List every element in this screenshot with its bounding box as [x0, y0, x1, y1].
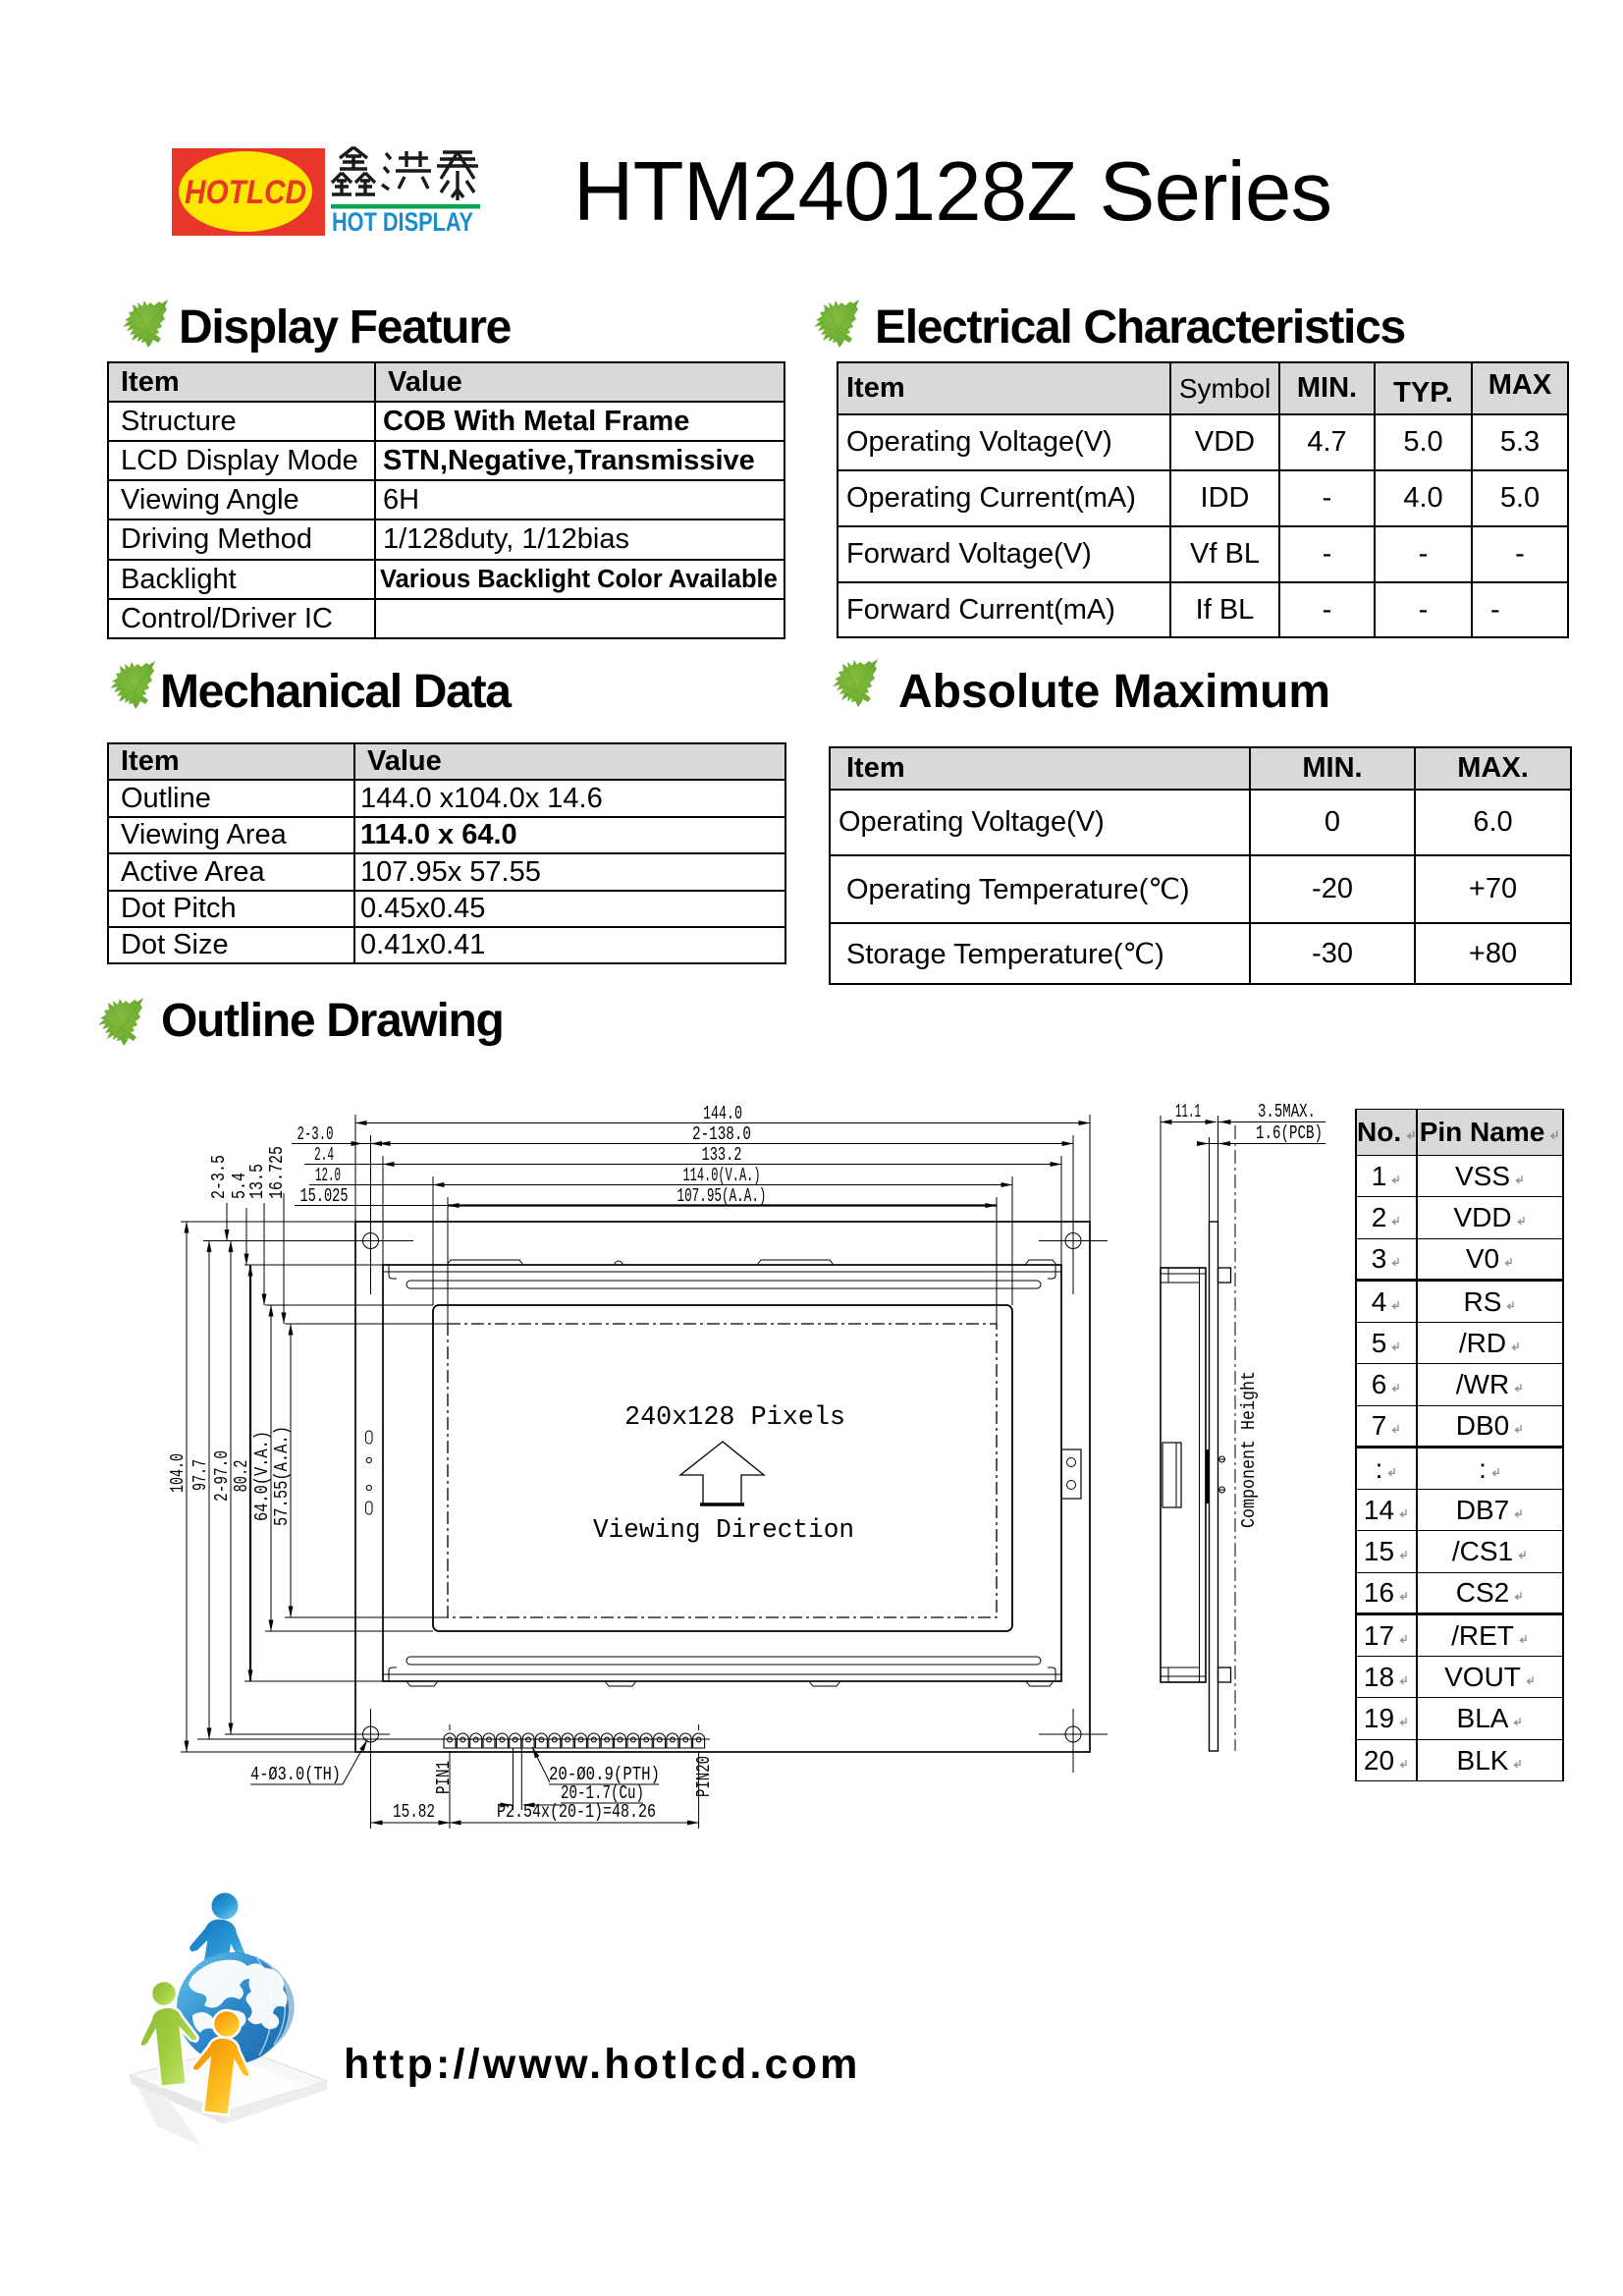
- svg-text:HOTLCD: HOTLCD: [185, 174, 306, 211]
- svg-text:64.0(V.A.): 64.0(V.A.): [251, 1431, 273, 1521]
- svg-text:2-3.5: 2-3.5: [208, 1155, 230, 1199]
- svg-text:80.2: 80.2: [231, 1460, 252, 1493]
- svg-text:HOT DISPLAY: HOT DISPLAY: [332, 207, 473, 237]
- svg-text:1.6(PCB): 1.6(PCB): [1256, 1122, 1323, 1144]
- svg-text:Viewing Direction: Viewing Direction: [593, 1516, 854, 1546]
- svg-text:97.7: 97.7: [189, 1459, 211, 1491]
- svg-text:11.1: 11.1: [1175, 1101, 1201, 1122]
- svg-text:PIN1: PIN1: [433, 1761, 455, 1794]
- svg-text:107.95(A.A.): 107.95(A.A.): [677, 1185, 767, 1207]
- svg-text:57.55(A.A.): 57.55(A.A.): [271, 1426, 293, 1526]
- svg-text:PIN20: PIN20: [693, 1756, 715, 1797]
- svg-text:P2.54x(20-1)=48.26: P2.54x(20-1)=48.26: [497, 1801, 656, 1823]
- svg-text:104.0: 104.0: [167, 1453, 189, 1493]
- svg-text:2.4: 2.4: [314, 1144, 334, 1166]
- svg-text:16.725: 16.725: [266, 1146, 288, 1199]
- svg-text:15.025: 15.025: [300, 1185, 349, 1207]
- svg-text:2-97.0: 2-97.0: [211, 1450, 233, 1502]
- svg-text:15.82: 15.82: [393, 1801, 435, 1823]
- svg-text:2-3.0: 2-3.0: [298, 1123, 334, 1145]
- svg-text:13.5: 13.5: [246, 1164, 268, 1199]
- svg-text:2-138.0: 2-138.0: [692, 1123, 751, 1145]
- svg-text:12.0: 12.0: [315, 1165, 341, 1186]
- svg-text:114.0(V.A.): 114.0(V.A.): [683, 1165, 761, 1186]
- svg-text:240x128 Pixels: 240x128 Pixels: [624, 1403, 845, 1433]
- svg-text:Component Height: Component Height: [1238, 1371, 1260, 1528]
- svg-text:144.0: 144.0: [703, 1103, 742, 1124]
- svg-text:3.5MAX.: 3.5MAX.: [1258, 1101, 1316, 1122]
- svg-text:4-Ø3.0(TH): 4-Ø3.0(TH): [250, 1764, 341, 1785]
- svg-text:133.2: 133.2: [702, 1144, 742, 1166]
